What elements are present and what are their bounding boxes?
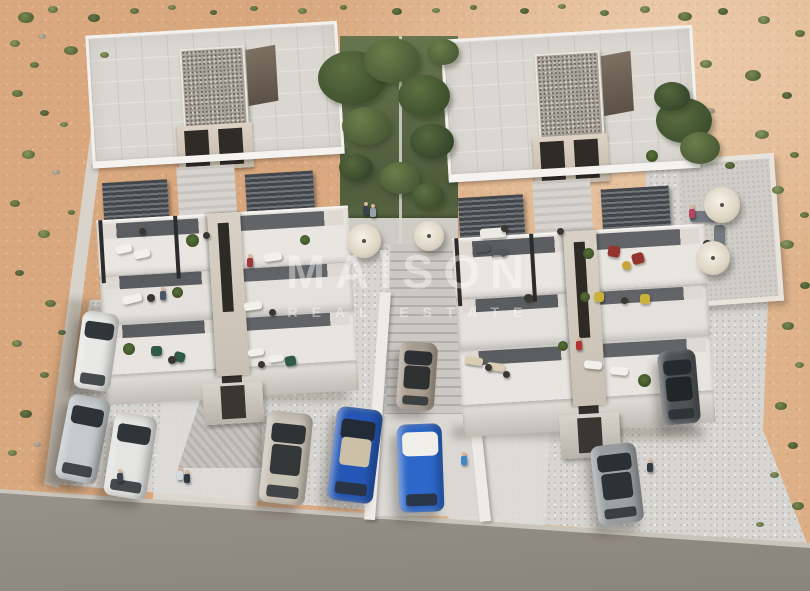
furniture-td <box>524 294 533 302</box>
furniture-td <box>269 309 276 316</box>
furniture-pl <box>123 343 135 355</box>
desert-shrub <box>432 8 440 13</box>
desert-shrub <box>788 442 798 449</box>
furniture-lw <box>115 243 132 254</box>
desert-shrub <box>755 130 769 139</box>
furniture-cr <box>631 252 645 266</box>
car-windshield <box>116 423 151 446</box>
car-windshield <box>70 405 105 429</box>
car-windshield <box>270 422 307 445</box>
person <box>369 204 376 217</box>
furniture-cr <box>607 245 621 258</box>
person-body <box>247 258 253 267</box>
person <box>688 205 695 218</box>
car-rear-window <box>604 506 637 520</box>
person <box>176 467 183 480</box>
furniture-td <box>503 371 510 378</box>
desert-shrub <box>795 362 804 368</box>
parked-car <box>103 411 159 501</box>
furniture-ld <box>474 243 491 253</box>
garden-tree <box>339 154 373 181</box>
car-rear-window <box>79 372 106 386</box>
garden-tree <box>412 183 444 209</box>
furniture-cy <box>594 292 604 302</box>
parked-car <box>54 393 112 485</box>
person-body <box>370 208 376 217</box>
furniture-um <box>414 221 444 251</box>
desert-shrub <box>15 270 24 276</box>
desert-shrub <box>782 322 794 330</box>
furniture-td <box>139 228 146 235</box>
furniture-lw <box>610 366 629 376</box>
desert-shrub <box>745 70 761 81</box>
desert-shrub <box>64 46 78 55</box>
desert-shrub <box>100 52 109 58</box>
desert-shrub <box>792 502 804 510</box>
garden-tree <box>398 75 450 117</box>
desert-shrub <box>782 92 792 99</box>
furniture-cy <box>640 294 650 304</box>
furniture-pl <box>583 248 594 259</box>
parked-car <box>258 410 313 506</box>
desert-shrub <box>678 12 692 21</box>
person-body <box>117 473 123 482</box>
person-body <box>177 471 183 480</box>
desert-shrub <box>10 40 20 47</box>
furniture-pl <box>638 374 651 387</box>
scene-items <box>0 0 810 591</box>
desert-shrub <box>640 6 650 13</box>
furniture-lw <box>248 348 265 357</box>
desert-shrub <box>22 150 35 159</box>
desert-shrub <box>790 152 799 158</box>
car-rear-window <box>334 481 367 497</box>
garden-tree <box>654 82 690 111</box>
garden-tree <box>342 107 390 145</box>
furniture-pl <box>646 150 658 162</box>
desert-shrub <box>520 8 529 14</box>
furniture-lw <box>268 354 285 363</box>
desert-shrub <box>758 16 770 24</box>
desert-shrub <box>558 4 566 9</box>
car-windshield <box>84 320 114 340</box>
car-roof <box>601 471 634 501</box>
desert-shrub <box>718 8 728 15</box>
car-rear-window <box>110 479 141 494</box>
furniture-td <box>485 364 492 371</box>
parked-car <box>73 310 120 392</box>
desert-shrub <box>88 14 100 22</box>
furniture-cg <box>151 346 162 356</box>
car-roof <box>404 366 431 390</box>
furniture-lw <box>133 248 150 259</box>
furniture-um <box>696 241 730 275</box>
desert-shrub <box>12 90 23 97</box>
desert-rock <box>52 170 60 175</box>
furniture-td <box>203 232 210 239</box>
furniture-lw <box>584 360 603 370</box>
desert-shrub <box>340 5 347 10</box>
car-rear-window <box>62 462 93 479</box>
desert-shrub <box>470 5 477 10</box>
parked-car <box>657 348 701 425</box>
desert-shrub <box>600 10 609 16</box>
parked-car <box>326 406 383 505</box>
desert-shrub <box>725 162 735 169</box>
desert-shrub <box>800 282 810 289</box>
aerial-property-render: MAISON REAL ESTATE <box>0 0 810 591</box>
furniture-td <box>621 297 628 304</box>
car-rear-window <box>266 484 299 499</box>
car-rear-window <box>402 395 429 406</box>
desert-rock <box>34 442 41 447</box>
car-roof <box>666 376 693 403</box>
person-body <box>689 209 695 218</box>
desert-shrub <box>18 12 34 23</box>
furniture-td <box>557 228 564 235</box>
furniture-lw <box>121 293 142 306</box>
person <box>575 337 582 350</box>
desert-shrub <box>392 8 402 15</box>
desert-shrub <box>772 186 784 194</box>
person-body <box>461 456 467 465</box>
furniture-ty <box>622 261 631 270</box>
car-roof <box>401 431 438 456</box>
garden-tree <box>427 39 459 65</box>
desert-shrub <box>20 410 32 418</box>
desert-shrub <box>780 240 794 249</box>
desert-shrub <box>210 10 217 15</box>
desert-shrub <box>30 62 39 68</box>
person <box>183 470 190 483</box>
furniture-lw <box>264 252 283 262</box>
desert-shrub <box>10 200 20 207</box>
car-windshield <box>596 452 633 473</box>
furniture-pl <box>172 287 183 298</box>
parked-car <box>589 441 644 526</box>
desert-shrub <box>58 330 66 335</box>
person <box>246 254 253 267</box>
furniture-td <box>147 294 155 302</box>
garden-tree <box>680 132 720 164</box>
desert-shrub <box>700 60 712 68</box>
furniture-pl <box>300 235 310 245</box>
desert-shrub <box>800 212 809 218</box>
parked-car <box>396 423 444 513</box>
furniture-pl <box>558 341 568 351</box>
desert-shrub <box>40 110 49 116</box>
person <box>646 459 653 472</box>
desert-rock <box>38 34 46 39</box>
desert-shrub <box>130 8 139 14</box>
desert-shrub <box>45 300 56 307</box>
desert-shrub <box>12 340 22 347</box>
parked-car <box>396 341 439 411</box>
furniture-td <box>501 225 508 232</box>
person-body <box>363 206 369 215</box>
car-roof <box>269 444 302 477</box>
car-rear-window <box>668 408 695 420</box>
furniture-lw <box>244 301 263 311</box>
person-body <box>647 463 653 472</box>
furniture-um <box>704 187 740 223</box>
person <box>159 287 166 300</box>
furniture-td <box>258 361 265 368</box>
furniture-td <box>168 356 176 364</box>
car-rear-window <box>406 494 438 507</box>
furniture-pl <box>580 292 590 302</box>
person-body <box>184 474 190 483</box>
car-roof <box>339 436 372 468</box>
desert-shrub <box>38 230 50 238</box>
furniture-cg <box>284 355 297 367</box>
person <box>362 202 369 215</box>
desert-shrub <box>770 472 779 478</box>
person <box>116 469 123 482</box>
desert-shrub <box>68 210 75 215</box>
furniture-um <box>347 224 381 258</box>
desert-shrub <box>60 122 68 127</box>
desert-shrub <box>48 6 58 13</box>
desert-shrub <box>756 522 764 527</box>
person <box>460 452 467 465</box>
person-body <box>160 291 166 300</box>
furniture-pl <box>186 234 199 247</box>
desert-shrub <box>168 5 176 10</box>
furniture-lb <box>465 356 484 366</box>
car-windshield <box>403 350 433 366</box>
person-body <box>576 341 582 350</box>
desert-shrub <box>40 372 49 378</box>
furniture-ld <box>491 248 508 258</box>
desert-shrub <box>775 402 787 410</box>
desert-shrub <box>8 450 17 456</box>
car-windshield <box>662 358 692 376</box>
desert-shrub <box>795 30 805 37</box>
desert-shrub <box>250 6 258 11</box>
desert-shrub <box>298 8 307 14</box>
garden-tree <box>410 124 454 159</box>
